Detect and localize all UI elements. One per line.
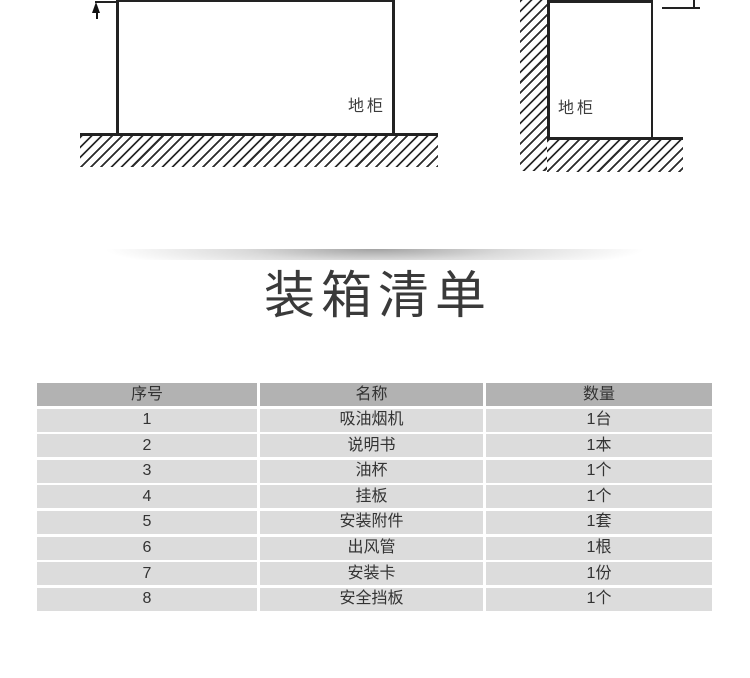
section-divider-shadow <box>0 249 750 260</box>
cell-quantity: 1个 <box>486 460 712 483</box>
table-row: 8 安全挡板 1个 <box>37 588 712 611</box>
right-cabinet-outline <box>547 0 653 139</box>
table-row: 6 出风管 1根 <box>37 537 712 560</box>
cell-name: 出风管 <box>260 537 483 560</box>
cell-name: 油杯 <box>260 460 483 483</box>
table-row: 4 挂板 1个 <box>37 485 712 508</box>
column-header-index: 序号 <box>37 383 257 406</box>
cell-index: 4 <box>37 485 257 508</box>
cell-quantity: 1个 <box>486 485 712 508</box>
page: 地柜 地柜 装箱清单 序号 名称 数量 1 吸油烟机 1台 2 说明书 1本 3… <box>0 0 750 678</box>
table-row: 3 油杯 1个 <box>37 460 712 483</box>
cell-index: 2 <box>37 434 257 457</box>
cell-name: 挂板 <box>260 485 483 508</box>
column-header-quantity: 数量 <box>486 383 712 406</box>
cell-quantity: 1套 <box>486 511 712 534</box>
cell-name: 说明书 <box>260 434 483 457</box>
right-cabinet-label: 地柜 <box>558 101 596 117</box>
cell-index: 5 <box>37 511 257 534</box>
column-header-name: 名称 <box>260 383 483 406</box>
cell-quantity: 1台 <box>486 409 712 432</box>
packing-list-table: 序号 名称 数量 1 吸油烟机 1台 2 说明书 1本 3 油杯 1个 4 挂板… <box>37 383 712 613</box>
right-wall-hatch <box>520 0 547 171</box>
cell-name: 安装附件 <box>260 511 483 534</box>
dimension-arrow-stem <box>96 11 98 19</box>
cell-index: 6 <box>37 537 257 560</box>
cell-quantity: 1本 <box>486 434 712 457</box>
left-ground-hatch <box>80 136 438 167</box>
table-row: 5 安装附件 1套 <box>37 511 712 534</box>
cell-index: 1 <box>37 409 257 432</box>
cell-index: 8 <box>37 588 257 611</box>
table-row: 1 吸油烟机 1台 <box>37 409 712 432</box>
left-cabinet-label: 地柜 <box>348 99 386 115</box>
right-dimension-tick <box>693 0 695 9</box>
cell-name: 吸油烟机 <box>260 409 483 432</box>
cell-quantity: 1份 <box>486 562 712 585</box>
cell-index: 3 <box>37 460 257 483</box>
cell-quantity: 1根 <box>486 537 712 560</box>
table-header-row: 序号 名称 数量 <box>37 383 712 406</box>
cell-quantity: 1个 <box>486 588 712 611</box>
table-row: 7 安装卡 1份 <box>37 562 712 585</box>
cell-name: 安装卡 <box>260 562 483 585</box>
table-row: 2 说明书 1本 <box>37 434 712 457</box>
cell-index: 7 <box>37 562 257 585</box>
cell-name: 安全挡板 <box>260 588 483 611</box>
page-title: 装箱清单 <box>0 262 750 331</box>
right-floor-hatch <box>547 140 683 172</box>
